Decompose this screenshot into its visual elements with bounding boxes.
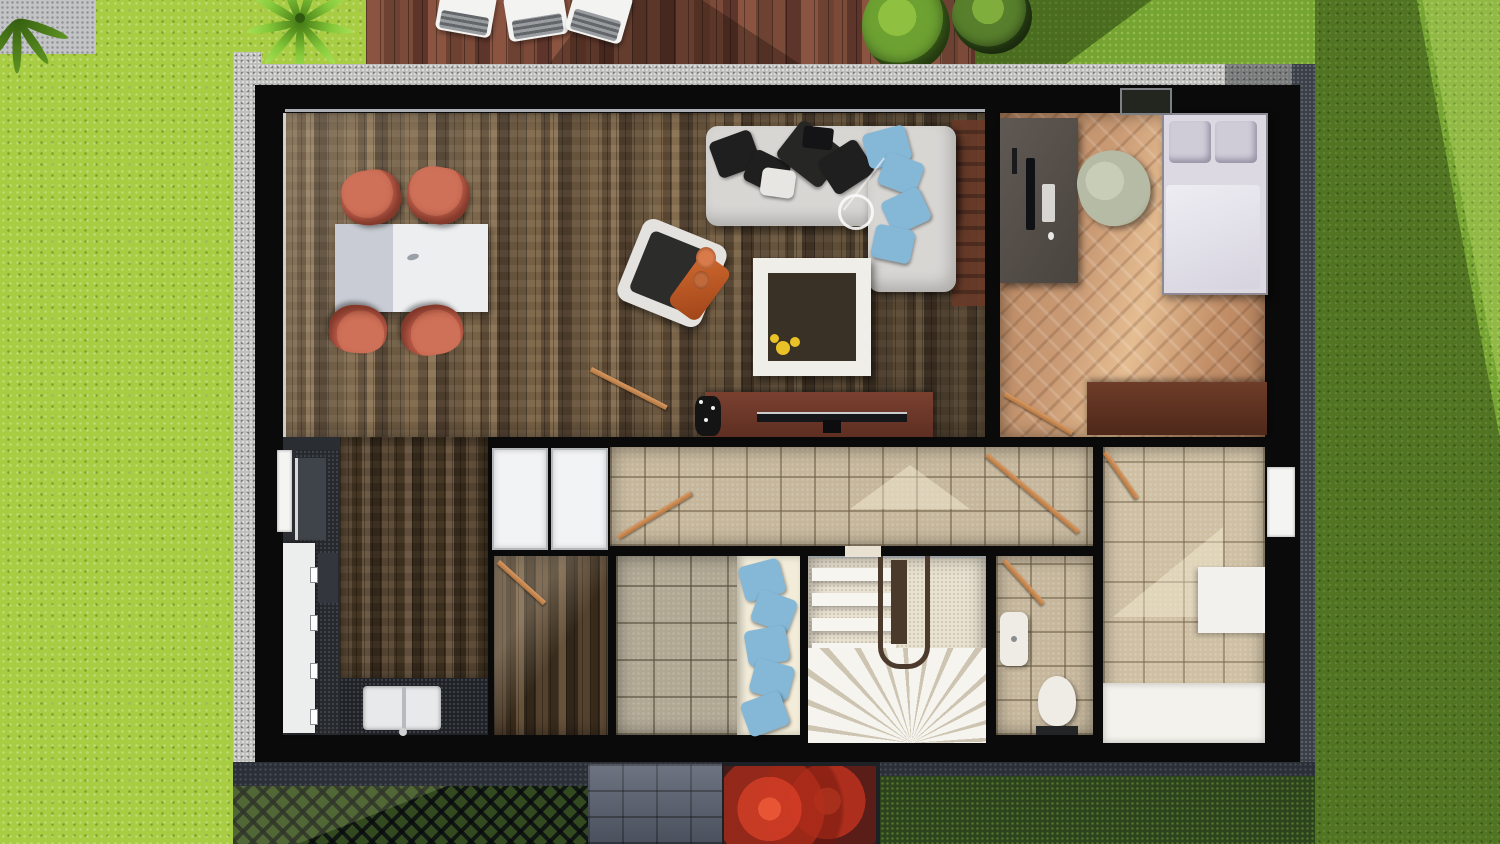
sofa-tray xyxy=(802,125,834,150)
counter-block xyxy=(318,553,338,603)
tv-stand xyxy=(823,420,841,433)
lounger-slats xyxy=(439,10,489,36)
dining-table xyxy=(335,224,488,312)
kitchen-counter xyxy=(340,678,488,735)
palm-center xyxy=(295,13,305,23)
stairwell xyxy=(808,556,986,743)
west-window xyxy=(277,450,292,532)
white-blossom xyxy=(699,400,703,404)
window-wall-glass xyxy=(285,109,985,112)
white-blossom xyxy=(711,406,715,410)
toilet xyxy=(1038,676,1076,726)
wc-sink xyxy=(1000,612,1028,666)
bedroom-window xyxy=(1120,88,1172,115)
palm-leaf xyxy=(246,18,301,36)
yellow-flowers xyxy=(790,337,800,347)
sink-divider xyxy=(402,686,406,730)
dresser xyxy=(1087,382,1267,435)
faucet xyxy=(399,728,407,736)
monitor xyxy=(1026,158,1035,230)
floorplan-render xyxy=(0,0,1500,844)
toilet-cistern xyxy=(1036,726,1078,735)
pantry-room xyxy=(494,556,608,735)
palm-leaf xyxy=(298,0,349,26)
palm-leaf xyxy=(262,20,304,67)
terracotta-pot xyxy=(696,247,716,269)
tv-sideboard xyxy=(705,392,933,437)
stairwell-entry xyxy=(845,546,881,557)
kitchen-wood-floor xyxy=(340,437,488,678)
grass-right-field xyxy=(1315,0,1500,844)
ceiling-lamp xyxy=(838,194,874,230)
kitchen-cabinet-white xyxy=(283,543,315,733)
stairwell-opening xyxy=(891,560,907,644)
cabinet-handle xyxy=(310,709,318,725)
wall-lining xyxy=(283,113,286,437)
palm-leaf xyxy=(297,20,339,67)
sun-lounger xyxy=(435,0,498,39)
planter-zone xyxy=(722,762,880,844)
kitchen xyxy=(283,437,488,735)
desk xyxy=(1000,118,1078,283)
closet-door xyxy=(492,448,548,550)
fireplace xyxy=(753,258,871,376)
white-pillow xyxy=(759,167,797,199)
white-blossom xyxy=(704,418,708,422)
duvet xyxy=(1166,185,1260,289)
bed-pillow xyxy=(1215,121,1257,163)
wood-platform-strip xyxy=(952,120,985,306)
stair-handrail xyxy=(878,556,930,669)
sink-drain xyxy=(1011,636,1017,642)
lattice-trellis xyxy=(233,786,590,844)
cabinet-handle xyxy=(310,663,318,679)
lattice-sun-patch xyxy=(233,786,447,844)
double-bed xyxy=(1162,113,1268,295)
sunlight-patch xyxy=(494,556,608,735)
shadowed-hedge xyxy=(880,776,1315,844)
plant-pot-black xyxy=(695,396,721,436)
east-window xyxy=(1267,467,1295,537)
palm-leaf xyxy=(277,0,304,24)
appliance-block xyxy=(295,458,326,540)
house-footprint xyxy=(255,85,1300,762)
bed-pillow xyxy=(1169,121,1211,163)
palm-leaf xyxy=(296,0,323,24)
cabinet-handle xyxy=(310,567,318,583)
palm-plant xyxy=(250,0,350,68)
double-sink xyxy=(363,686,441,730)
yellow-flowers xyxy=(776,341,790,355)
bathroom xyxy=(1103,447,1265,743)
desk-lamp xyxy=(1012,148,1017,174)
palm-leaf xyxy=(251,0,302,26)
keyboard xyxy=(1042,184,1055,222)
sunlight-patch xyxy=(850,465,970,509)
sun-lounger xyxy=(503,0,569,42)
bathroom-cabinet xyxy=(1198,567,1265,633)
terracotta-pot xyxy=(693,271,709,289)
yellow-flowers xyxy=(770,334,779,343)
bathtub xyxy=(1103,683,1265,743)
lounger-slats xyxy=(511,13,564,40)
cabinet-handle xyxy=(310,615,318,631)
red-bush xyxy=(724,766,876,844)
palm-leaf xyxy=(299,18,354,36)
closet-door xyxy=(551,448,608,550)
mouse xyxy=(1048,232,1054,240)
table-decor xyxy=(406,253,419,262)
corner-pavement xyxy=(0,0,96,54)
wc-room xyxy=(996,556,1093,735)
paver-path xyxy=(588,764,722,844)
